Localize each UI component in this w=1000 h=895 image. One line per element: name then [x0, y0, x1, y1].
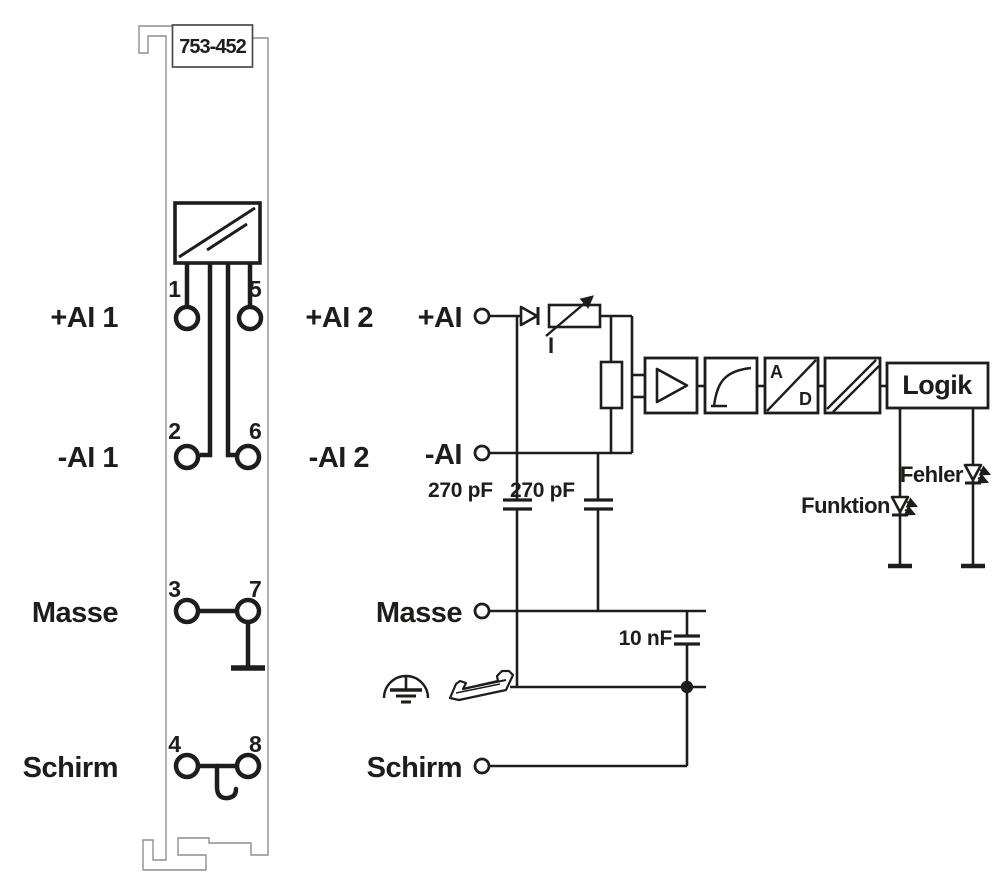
- terminal-line-6: [228, 263, 236, 455]
- terminal-number-2: 2: [168, 418, 181, 444]
- terminal-circle-3: [176, 600, 198, 622]
- diagram-canvas: 753-452 1 5 2 6 3 7 4 8 +AI 1 -AI 1 Mass…: [0, 0, 1000, 895]
- earth-ground-icon: [384, 676, 428, 702]
- input-terminal-plus-ai: [475, 309, 489, 323]
- led-funktion-emission-arrow-2: [905, 510, 914, 514]
- current-limiter-label: I: [548, 333, 554, 358]
- label-plus-ai2: +AI 2: [305, 302, 373, 334]
- terminal-circle-6: [237, 446, 259, 468]
- part-number-label: 753-452: [179, 36, 246, 58]
- terminal-circle-8: [237, 755, 259, 777]
- schematic-label-minus-ai: -AI: [425, 439, 462, 471]
- terminal-number-3: 3: [168, 576, 181, 602]
- filter-box: [705, 358, 757, 413]
- fehler-label: Fehler: [900, 462, 964, 487]
- label-schirm-left: Schirm: [23, 752, 118, 784]
- label-minus-ai2: -AI 2: [309, 442, 369, 474]
- wiring-diagram-753-452: 753-452 1 5 2 6 3 7 4 8 +AI 1 -AI 1 Mass…: [0, 0, 1000, 895]
- label-plus-ai1: +AI 1: [50, 302, 118, 334]
- shunt-resistor: [601, 362, 622, 408]
- cap-270-left-label: 270 pF: [428, 479, 493, 502]
- led-fehler-emission-arrow-2: [978, 478, 987, 482]
- terminal-circle-2: [176, 446, 198, 468]
- din-rail-icon: [450, 671, 513, 700]
- terminal-number-5: 5: [249, 276, 262, 302]
- cap-10nf-label: 10 nF: [619, 627, 673, 650]
- funktion-label: Funktion: [801, 493, 890, 518]
- logic-label: Logik: [902, 370, 973, 400]
- terminal-number-8: 8: [249, 731, 262, 757]
- terminal-circle-5: [239, 307, 261, 329]
- isolation-barrier-box: [825, 358, 880, 413]
- terminal-circle-7: [237, 600, 259, 622]
- led-fehler-emission-arrow-1: [980, 470, 989, 474]
- adc-label-d: D: [799, 389, 812, 409]
- schirm-hook: [217, 766, 236, 798]
- input-terminal-schirm: [475, 759, 489, 773]
- terminal-number-1: 1: [168, 276, 181, 302]
- terminal-circle-1: [176, 307, 198, 329]
- terminal-circle-4: [176, 755, 198, 777]
- input-terminal-masse: [475, 604, 489, 618]
- terminal-number-4: 4: [168, 731, 181, 757]
- diode-icon: [521, 307, 537, 325]
- schematic-label-masse: Masse: [376, 597, 463, 629]
- led-funktion-emission-arrow-1: [907, 502, 916, 506]
- label-minus-ai1: -AI 1: [58, 442, 119, 474]
- terminal-number-7: 7: [249, 576, 262, 602]
- schematic-label-plus-ai: +AI: [418, 302, 462, 334]
- terminal-number-6: 6: [249, 418, 262, 444]
- terminal-line-2: [200, 263, 210, 455]
- adc-label-a: A: [770, 362, 783, 382]
- label-masse-left: Masse: [32, 597, 119, 629]
- schematic-label-schirm: Schirm: [367, 752, 462, 784]
- current-limiter-icon: [549, 305, 600, 327]
- input-terminal-minus-ai: [475, 446, 489, 460]
- cap-270-right-label: 270 pF: [510, 479, 575, 502]
- junction-dot: [681, 681, 693, 693]
